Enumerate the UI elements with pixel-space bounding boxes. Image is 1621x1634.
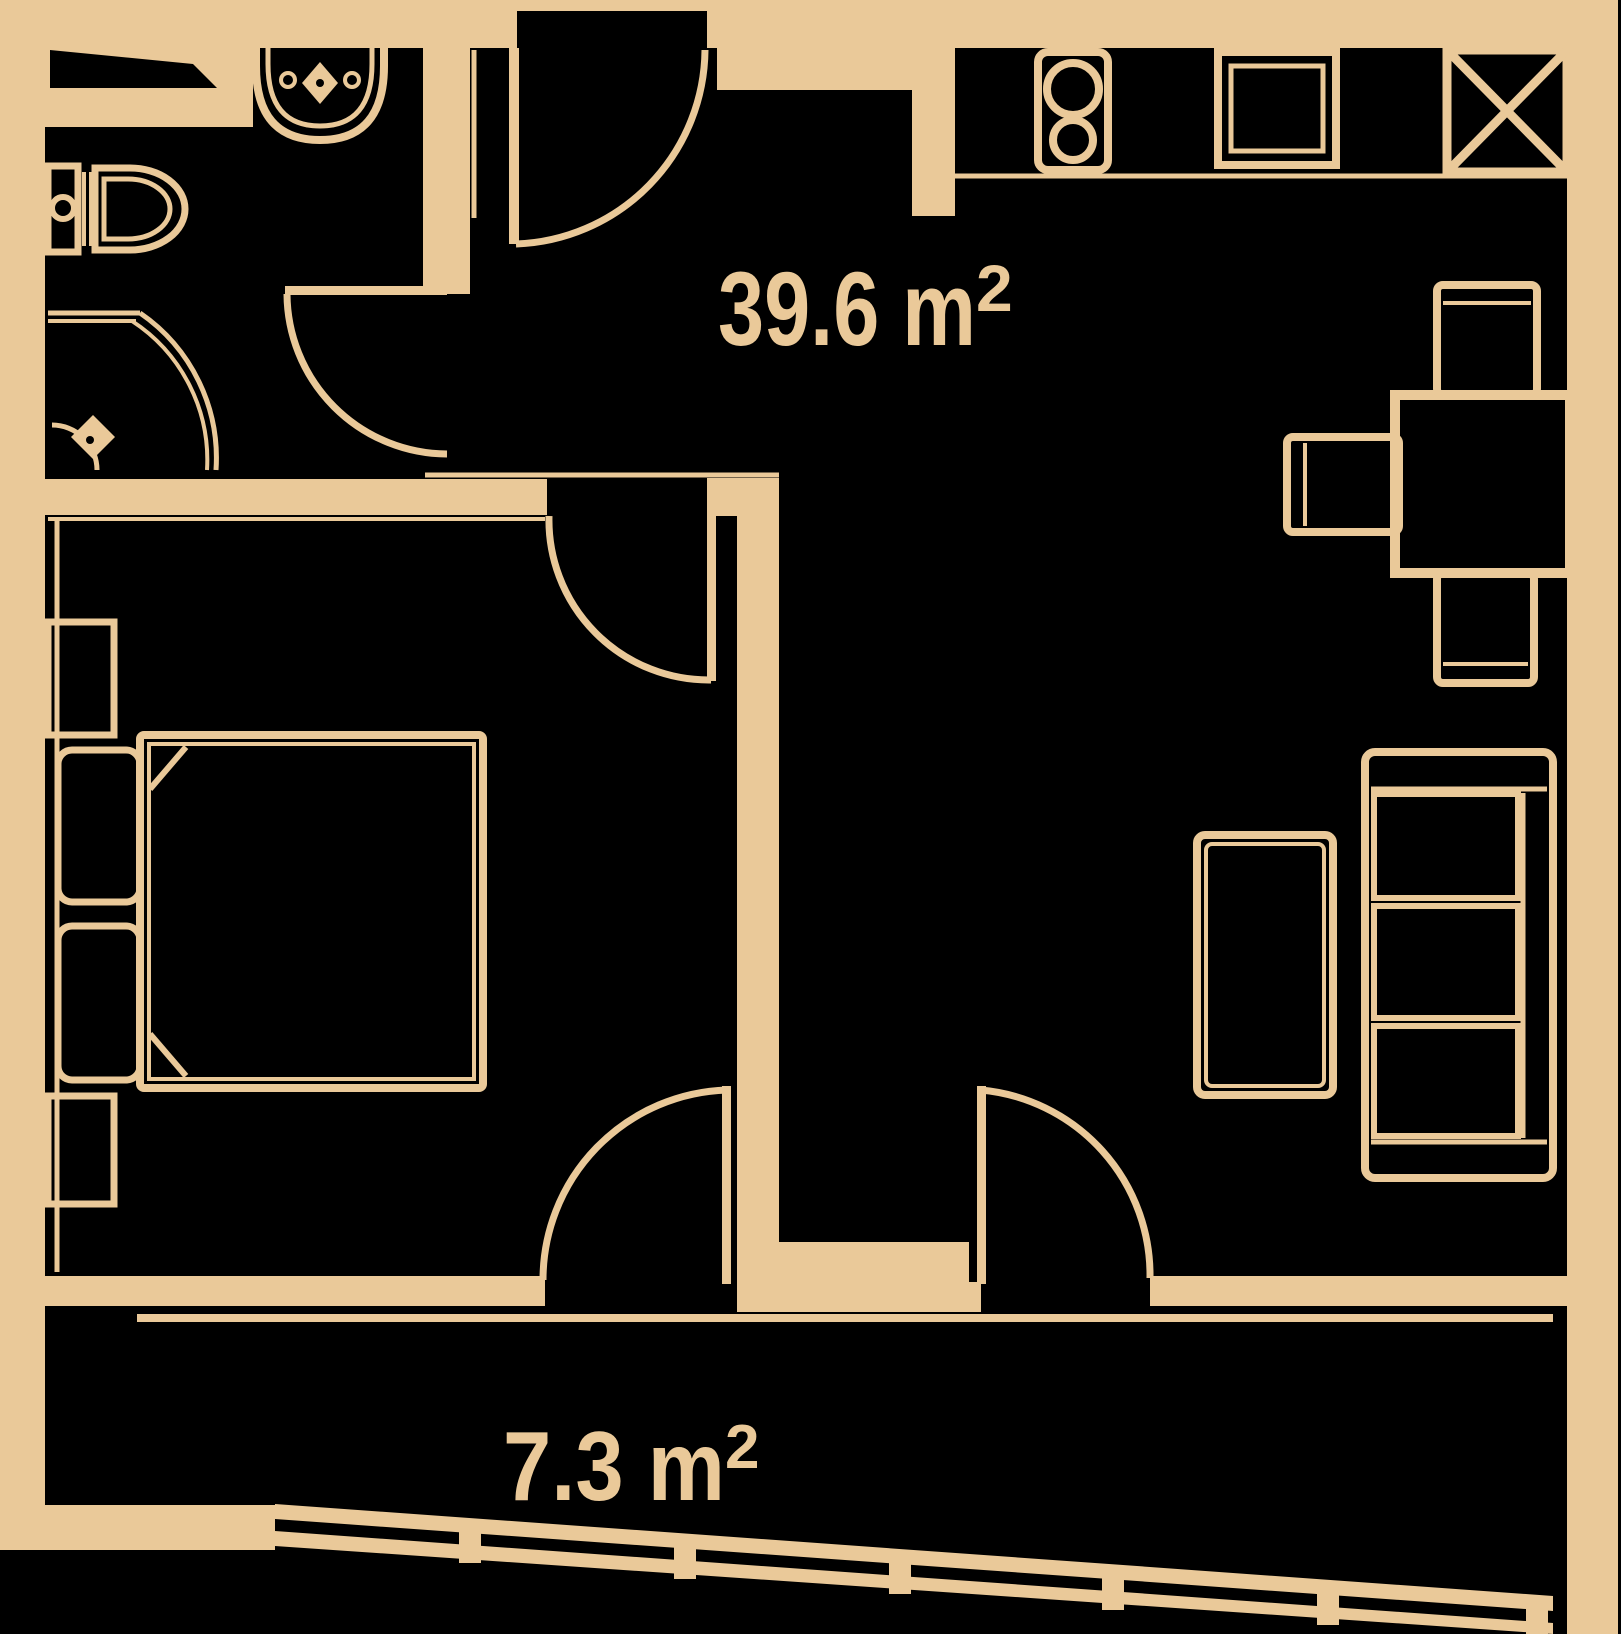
bed-outline-outer [140, 735, 483, 1088]
coffee-table-inner [1206, 844, 1324, 1086]
dining-area [1287, 285, 1570, 683]
railing-post-5 [1317, 1593, 1339, 1625]
bedroom-balcony-door-arc [543, 1090, 727, 1280]
chair-bottom [1437, 573, 1534, 683]
railing-post-4 [1102, 1578, 1124, 1610]
main-area-value: 39.6 m [718, 251, 976, 368]
toilet-bowl-inner [104, 179, 170, 239]
doors [285, 48, 1150, 1284]
stove-burner-large [1047, 63, 1099, 115]
bathroom-door-arc [287, 294, 447, 454]
bathroom-door-leaf [285, 286, 447, 295]
bed-fold-line-top [150, 747, 186, 789]
living-balcony-door-arc [981, 1090, 1150, 1278]
railing-post-2 [674, 1547, 696, 1579]
exterior-wall-right [1567, 48, 1618, 1634]
living-balcony-door-leaf [977, 1086, 986, 1284]
floor-plan-canvas: 39.6 m2 7.3 m2 [0, 0, 1621, 1634]
shower-drain-dot [86, 436, 94, 444]
bedroom-partition-wall [45, 479, 547, 515]
faucet-handle-right-icon [345, 73, 359, 87]
balcony-window-line [137, 1314, 1553, 1322]
central-partition-wall [737, 514, 779, 1244]
dining-table [1395, 395, 1570, 573]
floor-plan-page: 39.6 m2 7.3 m2 [0, 0, 1621, 1634]
washbasin-faucet-dot [316, 79, 324, 87]
bedroom-balcony-door-leaf [722, 1086, 731, 1284]
pillow-2 [58, 926, 140, 1080]
balcony [275, 1504, 1553, 1634]
top-wall-thick-section [717, 48, 912, 90]
exterior-wall-left [0, 48, 45, 1550]
balcony-left-wall-block [0, 1505, 275, 1550]
exterior-wall-top [0, 0, 1618, 48]
entrance-door-leaf [509, 48, 519, 244]
railing-post-3 [889, 1562, 911, 1594]
bottom-wall-right [1150, 1276, 1570, 1306]
coffee-table-outer [1197, 835, 1333, 1095]
railing-post-6 [1526, 1608, 1548, 1634]
shower-drain-icon [71, 415, 115, 459]
main-area-label: 39.6 m2 [718, 251, 1013, 368]
kitchen-wall-stub [912, 48, 955, 216]
partition-wall-head [707, 478, 779, 516]
central-wall-bottom-bar [737, 1242, 969, 1312]
sofa-cushion-3 [1374, 1026, 1518, 1136]
shower-enclosure-arc-inner [132, 321, 207, 470]
bedroom [48, 622, 483, 1204]
bed-outline-inner [149, 744, 474, 1079]
bedroom-door-leaf [707, 514, 716, 681]
balcony-area-superscript: 2 [725, 1413, 759, 1482]
stove-burner-small [1053, 120, 1093, 160]
bottom-wall-left [45, 1276, 545, 1306]
faucet-handle-left-icon [281, 73, 295, 87]
main-area-superscript: 2 [976, 251, 1013, 325]
bed-fold-line-bottom [150, 1034, 186, 1076]
sofa-cushion-2 [1374, 906, 1518, 1018]
sofa-cushion-1 [1374, 794, 1518, 898]
toilet-flush-button [52, 197, 74, 219]
kitchen-sink-inner [1231, 66, 1323, 151]
entrance-recess [517, 11, 707, 48]
balcony-area-label: 7.3 m2 [503, 1411, 759, 1521]
railing-post-1 [459, 1531, 481, 1563]
balcony-area-value: 7.3 m [503, 1411, 725, 1521]
living-area [1197, 752, 1553, 1178]
kitchen-sink-outer [1218, 52, 1336, 165]
central-wall-notch [969, 1282, 981, 1312]
bathroom-partition-wall [423, 48, 470, 294]
entrance-door-arc [516, 50, 705, 244]
pillow-1 [58, 750, 140, 902]
bedroom-door-arc [549, 516, 711, 680]
kitchen [1038, 50, 1567, 172]
